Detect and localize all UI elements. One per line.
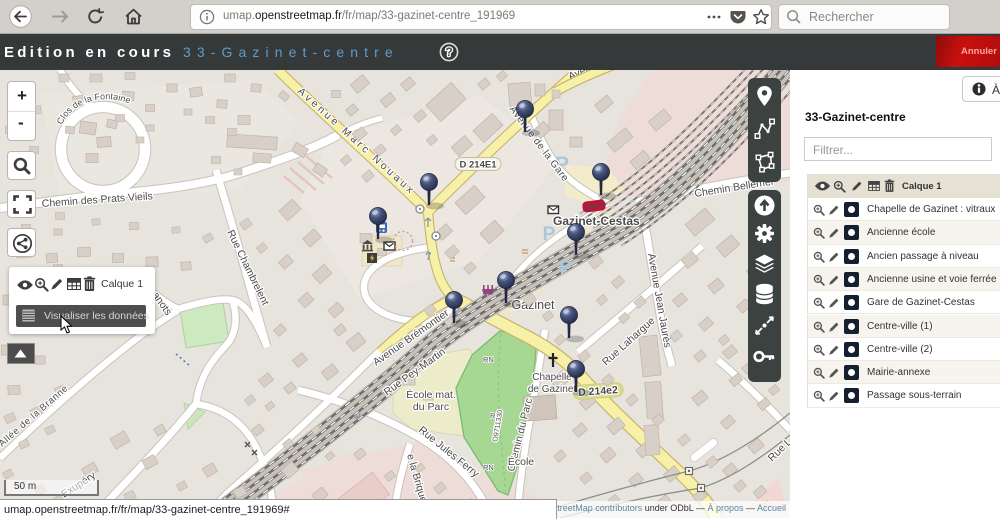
svg-text:du Parc: du Parc [413, 401, 449, 413]
svg-text:P: P [560, 258, 573, 279]
svg-text:Gazinet-Cestas: Gazinet-Cestas [553, 214, 640, 228]
svg-text:RN: RN [483, 355, 494, 364]
svg-text:École: École [508, 455, 534, 468]
svg-text:?: ? [445, 45, 452, 59]
svg-text:RN: RN [483, 463, 494, 472]
svg-text:Chapelle: Chapelle [532, 372, 572, 383]
svg-text:de Gazinet: de Gazinet [528, 384, 577, 395]
svg-text:École mat.: École mat. [406, 388, 456, 401]
svg-text:D 214E1: D 214E1 [460, 160, 498, 171]
